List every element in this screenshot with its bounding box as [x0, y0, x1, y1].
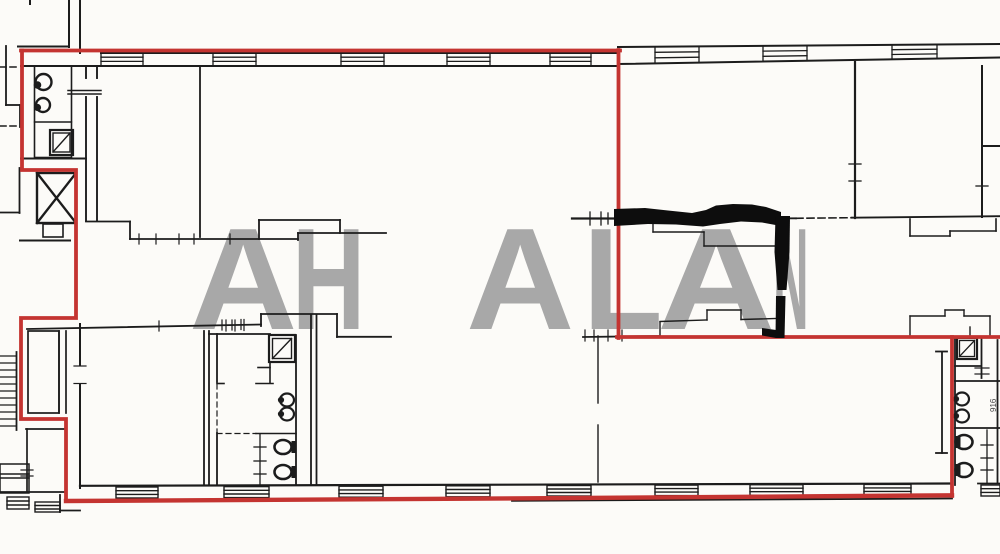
svg-text:916: 916: [989, 398, 998, 412]
svg-text:A: A: [466, 198, 574, 360]
svg-text:A: A: [189, 198, 297, 360]
